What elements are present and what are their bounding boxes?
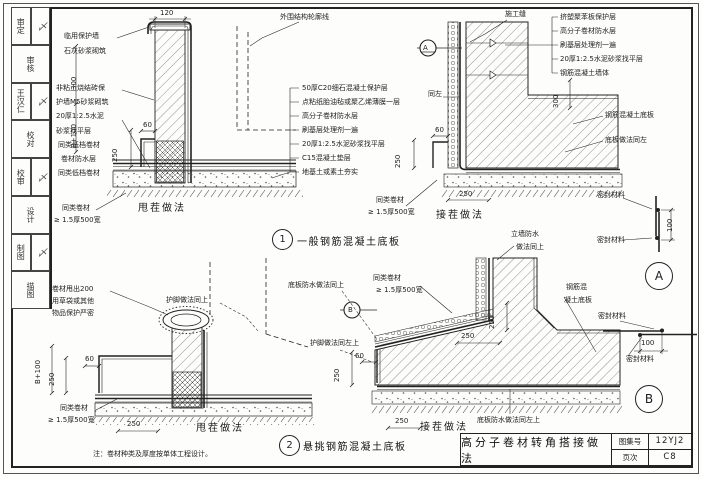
label-foot-same-as-above: 护脚做法同上 (166, 296, 208, 305)
caption-flashing-tail-method-2: 甩茬做法 (196, 419, 244, 434)
page-number-label: 页次 (612, 450, 649, 466)
stamp-row: 制图 〆 (11, 234, 50, 272)
label-layer-7: 地基土或素土夯实 (302, 168, 358, 177)
dim2-b-plus-100: B+100 (34, 360, 43, 384)
stamp-row: 校审 〆 (11, 158, 50, 196)
atlas-number-value: 12YJ2 (649, 434, 691, 450)
label-same-membrane-1: 同类卷材 (62, 204, 90, 213)
stamp-cell: 校对 (11, 120, 50, 158)
label-low-grade-membrane-1: 同类低档卷材 (58, 141, 100, 150)
label2-same-membrane-2: ≥ 1.5厚500宽 (48, 416, 95, 425)
stamp-cell: 王汉仁 (11, 83, 31, 121)
dim2-right-250-haunch: 250 (461, 332, 474, 341)
label-right-layer-5: 钢筋混凝土墙体 (560, 69, 609, 78)
label-wall-wp-1: 立墙防水 (511, 230, 539, 239)
label-layer-3: 高分子卷材防水层 (302, 112, 358, 121)
detail-1-number: 1 (279, 234, 285, 245)
label-tail-note-2: 用草袋或其他 (52, 297, 94, 306)
detail-b-circle: B (635, 385, 663, 413)
stamp-cell: 审定 (11, 7, 31, 45)
label-protective-wall-2: 石灰砂浆砌筑 (64, 47, 106, 56)
label-slab-wp-same-as-above: 底板防水做法同上 (288, 281, 344, 290)
label-slab-same-as-left: 底板做法同左 (605, 136, 647, 145)
d1-layer-callout-lines (272, 88, 299, 178)
stamp-cell: 描图 (11, 271, 50, 309)
signature-cell: 〆 (31, 7, 51, 45)
label-foot-same-as-left-above: 护脚做法同左上 (310, 339, 359, 348)
stamp-row: 审核 (11, 45, 50, 83)
label-construction-joint: 施工缝 (505, 10, 526, 19)
stamp-row: 描图 (11, 271, 50, 309)
caption-joint-lap-method-2: 接茬做法 (420, 418, 468, 433)
label-layer-4: 刷基层处理剂一遍 (302, 126, 358, 135)
stamp-row: 审定 〆 (11, 7, 50, 45)
label-layer-2: 点粘纸胎油毡或聚乙烯薄膜一层 (302, 98, 400, 107)
label-screed-2: 砂浆找平层 (56, 127, 91, 136)
label-layer-5: 20厚1:2.5水泥砂浆找平层 (302, 140, 385, 149)
label-brick-wall-1: 非粘土烧结砖保 (56, 84, 105, 93)
dim2-250-bottom-left: 250 (127, 420, 140, 429)
label-layer-6: C15混凝土垫层 (302, 154, 351, 163)
label2-same-membrane-4: ≥ 1.5厚500宽 (376, 286, 423, 295)
dim2-right-250-vertical: 250 (488, 316, 497, 329)
callout-a-letter: A (423, 44, 428, 53)
d1-left-drawing (74, 16, 303, 210)
label-right-layer-2: 高分子卷材防水层 (560, 27, 616, 36)
detail-2-number: 2 (286, 440, 292, 451)
callout-b-letter: B (348, 306, 353, 315)
label-tail-note-1: 卷材甩出200 (52, 285, 93, 294)
detail-1-title: 一般钢筋混凝土底板 (297, 233, 401, 248)
sheet-title: 高分子卷材转角搭接做法 (461, 434, 611, 465)
dim-250-vertical: 250 (111, 149, 120, 162)
page-number-value: C8 (649, 450, 691, 466)
label-waterproof-membrane: 卷材防水层 (61, 155, 96, 164)
detail-2-title: 悬挑钢筋混凝土底板 (303, 438, 407, 453)
title-block: 高分子卷材转角搭接做法 图集号 12YJ2 页次 C8 (460, 433, 692, 466)
atlas-drawing-sheet: 审定 〆 审核 王汉仁 〆 校对 校审 〆 设计 制图 〆 描图 外围结构轮廓线… (0, 0, 702, 477)
dim2-left-face-250: 250 (333, 369, 342, 382)
label-protective-wall-1: 临用保护墙 (64, 32, 99, 41)
dim-120: 120 (160, 9, 173, 18)
title-block-grid: 图集号 12YJ2 页次 C8 (611, 434, 691, 465)
dim2-250-vertical: 250 (48, 373, 57, 386)
label2-rc-slab-1: 钢筋混 (566, 283, 587, 292)
stamp-row: 设计 (11, 196, 50, 234)
dim2-right-250-bottom: 250 (395, 417, 408, 426)
stamp-cell: 制图 (11, 234, 31, 272)
label2-rc-slab-2: 凝土底板 (564, 296, 592, 305)
dim2-right-60: 60 (355, 352, 364, 361)
label-rc-base-slab: 钢筋混凝土底板 (605, 111, 654, 120)
label-slab-wp-same-as-left-above: 底板防水做法同左上 (477, 416, 540, 425)
dim-a-100: 100 (666, 219, 675, 232)
label-right-layer-3: 刷基层处理剂一遍 (560, 41, 616, 50)
dim-right-250-vertical: 250 (394, 155, 403, 168)
label-screed-1: 20厚1:2.5水泥 (56, 112, 104, 121)
note-text: 注：卷材种类及厚度按单体工程设计。 (93, 450, 212, 459)
stamp-cell: 设计 (11, 196, 50, 234)
label-layer-1: 50厚C20细石混凝土保护层 (302, 84, 388, 93)
dim-right-300: 300 (552, 95, 561, 108)
stamp-cell: 校审 (11, 158, 31, 196)
label-same-as-left: 同左 (428, 90, 442, 99)
stamp-cell: 审核 (11, 45, 50, 83)
dim-right-60: 60 (435, 126, 444, 135)
detail-1-number-circle: 1 (272, 229, 293, 250)
label-wall-wp-2: 做法同上 (516, 243, 544, 252)
label-same-membrane-4: ≥ 1.5厚500宽 (368, 208, 415, 217)
label-sealant-a-bottom: 密封材料 (597, 236, 625, 245)
signature-cell: 〆 (31, 158, 51, 196)
detail-a-circle: A (645, 262, 673, 290)
atlas-number-label: 图集号 (612, 434, 649, 450)
label-sealant-b-bottom: 密封材料 (626, 355, 654, 364)
signature-cell: 〆 (31, 83, 51, 121)
label-brick-wall-2: 护墙M5砂浆砌筑 (56, 98, 109, 107)
dim-right-250-bottom: 250 (459, 190, 472, 199)
dim2-60: 60 (85, 355, 94, 364)
label-sealant-b-top: 密封材料 (598, 312, 626, 321)
caption-flashing-tail-method-1: 甩茬做法 (138, 199, 186, 214)
caption-joint-lap-method-1: 接茬做法 (436, 206, 484, 221)
label-sealant-a-top: 密封材料 (597, 191, 625, 200)
label-low-grade-membrane-2: 同类低档卷材 (58, 169, 100, 178)
label-right-layer-4: 20厚1:2.5水泥砂浆找平层 (560, 55, 643, 64)
dim-b-100: 100 (641, 339, 654, 348)
label-same-membrane-3: 同类卷材 (376, 196, 404, 205)
stamp-row: 校对 (11, 120, 50, 158)
detail-2-number-circle: 2 (279, 435, 300, 456)
signature-cell: 〆 (31, 234, 51, 272)
label-right-layer-1: 挤塑聚苯板保护层 (560, 13, 616, 22)
detail-b-letter: B (645, 392, 653, 406)
label-same-membrane-2: ≥ 1.5厚500宽 (54, 216, 101, 225)
dim-60: 60 (143, 121, 152, 130)
label-tail-note-3: 物品保护严密 (52, 309, 94, 318)
detail-a-letter: A (655, 269, 663, 283)
label-outer-structure-outline: 外围结构轮廓线 (280, 13, 329, 22)
label2-same-membrane-1: 同类卷材 (60, 404, 88, 413)
stamp-row: 王汉仁 〆 (11, 83, 50, 121)
binding-edge-stamp-column: 审定 〆 审核 王汉仁 〆 校对 校审 〆 设计 制图 〆 描图 (11, 7, 52, 309)
label2-same-membrane-3: 同类卷材 (373, 274, 401, 283)
